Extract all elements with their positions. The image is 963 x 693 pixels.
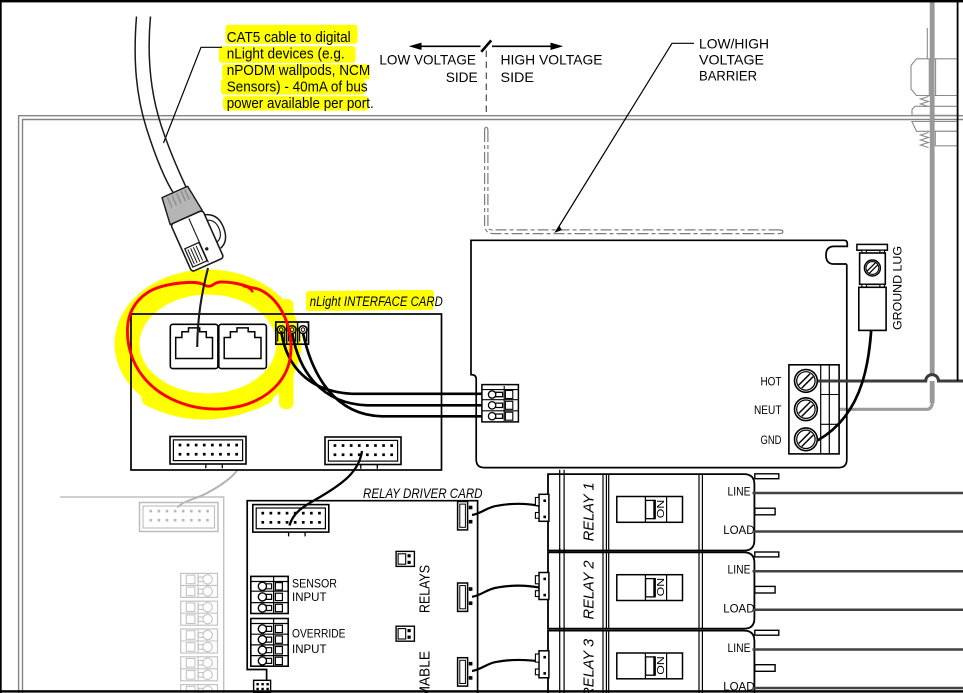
svg-text:RELAYS: RELAYS	[417, 565, 434, 613]
svg-text:INPUT: INPUT	[292, 592, 327, 604]
svg-text:NEUT: NEUT	[754, 405, 782, 417]
svg-text:GND: GND	[761, 435, 782, 447]
svg-text:VOLTAGE: VOLTAGE	[699, 51, 764, 67]
svg-text:SENSOR: SENSOR	[292, 578, 337, 590]
svg-text:SIDE: SIDE	[446, 69, 478, 85]
svg-text:OVERRIDE: OVERRIDE	[292, 628, 346, 640]
svg-text:HIGH VOLTAGE: HIGH VOLTAGE	[501, 52, 603, 68]
svg-text:SIDE: SIDE	[501, 69, 535, 85]
svg-text:INPUT: INPUT	[292, 644, 327, 656]
svg-text:HOT: HOT	[761, 377, 782, 389]
svg-text:RELAY 1: RELAY 1	[581, 482, 598, 541]
svg-text:RELAY 3: RELAY 3	[581, 638, 598, 693]
svg-text:LOW VOLTAGE: LOW VOLTAGE	[379, 52, 476, 68]
svg-text:RELAY DRIVER CARD: RELAY DRIVER CARD	[363, 485, 483, 501]
svg-text:BARRIER: BARRIER	[699, 67, 757, 83]
svg-text:RELAY 2: RELAY 2	[581, 560, 598, 620]
svg-text:GROUND LUG: GROUND LUG	[891, 246, 905, 330]
svg-text:MMABLE: MMABLE	[417, 651, 434, 693]
svg-text:LOW/HIGH: LOW/HIGH	[699, 35, 769, 51]
